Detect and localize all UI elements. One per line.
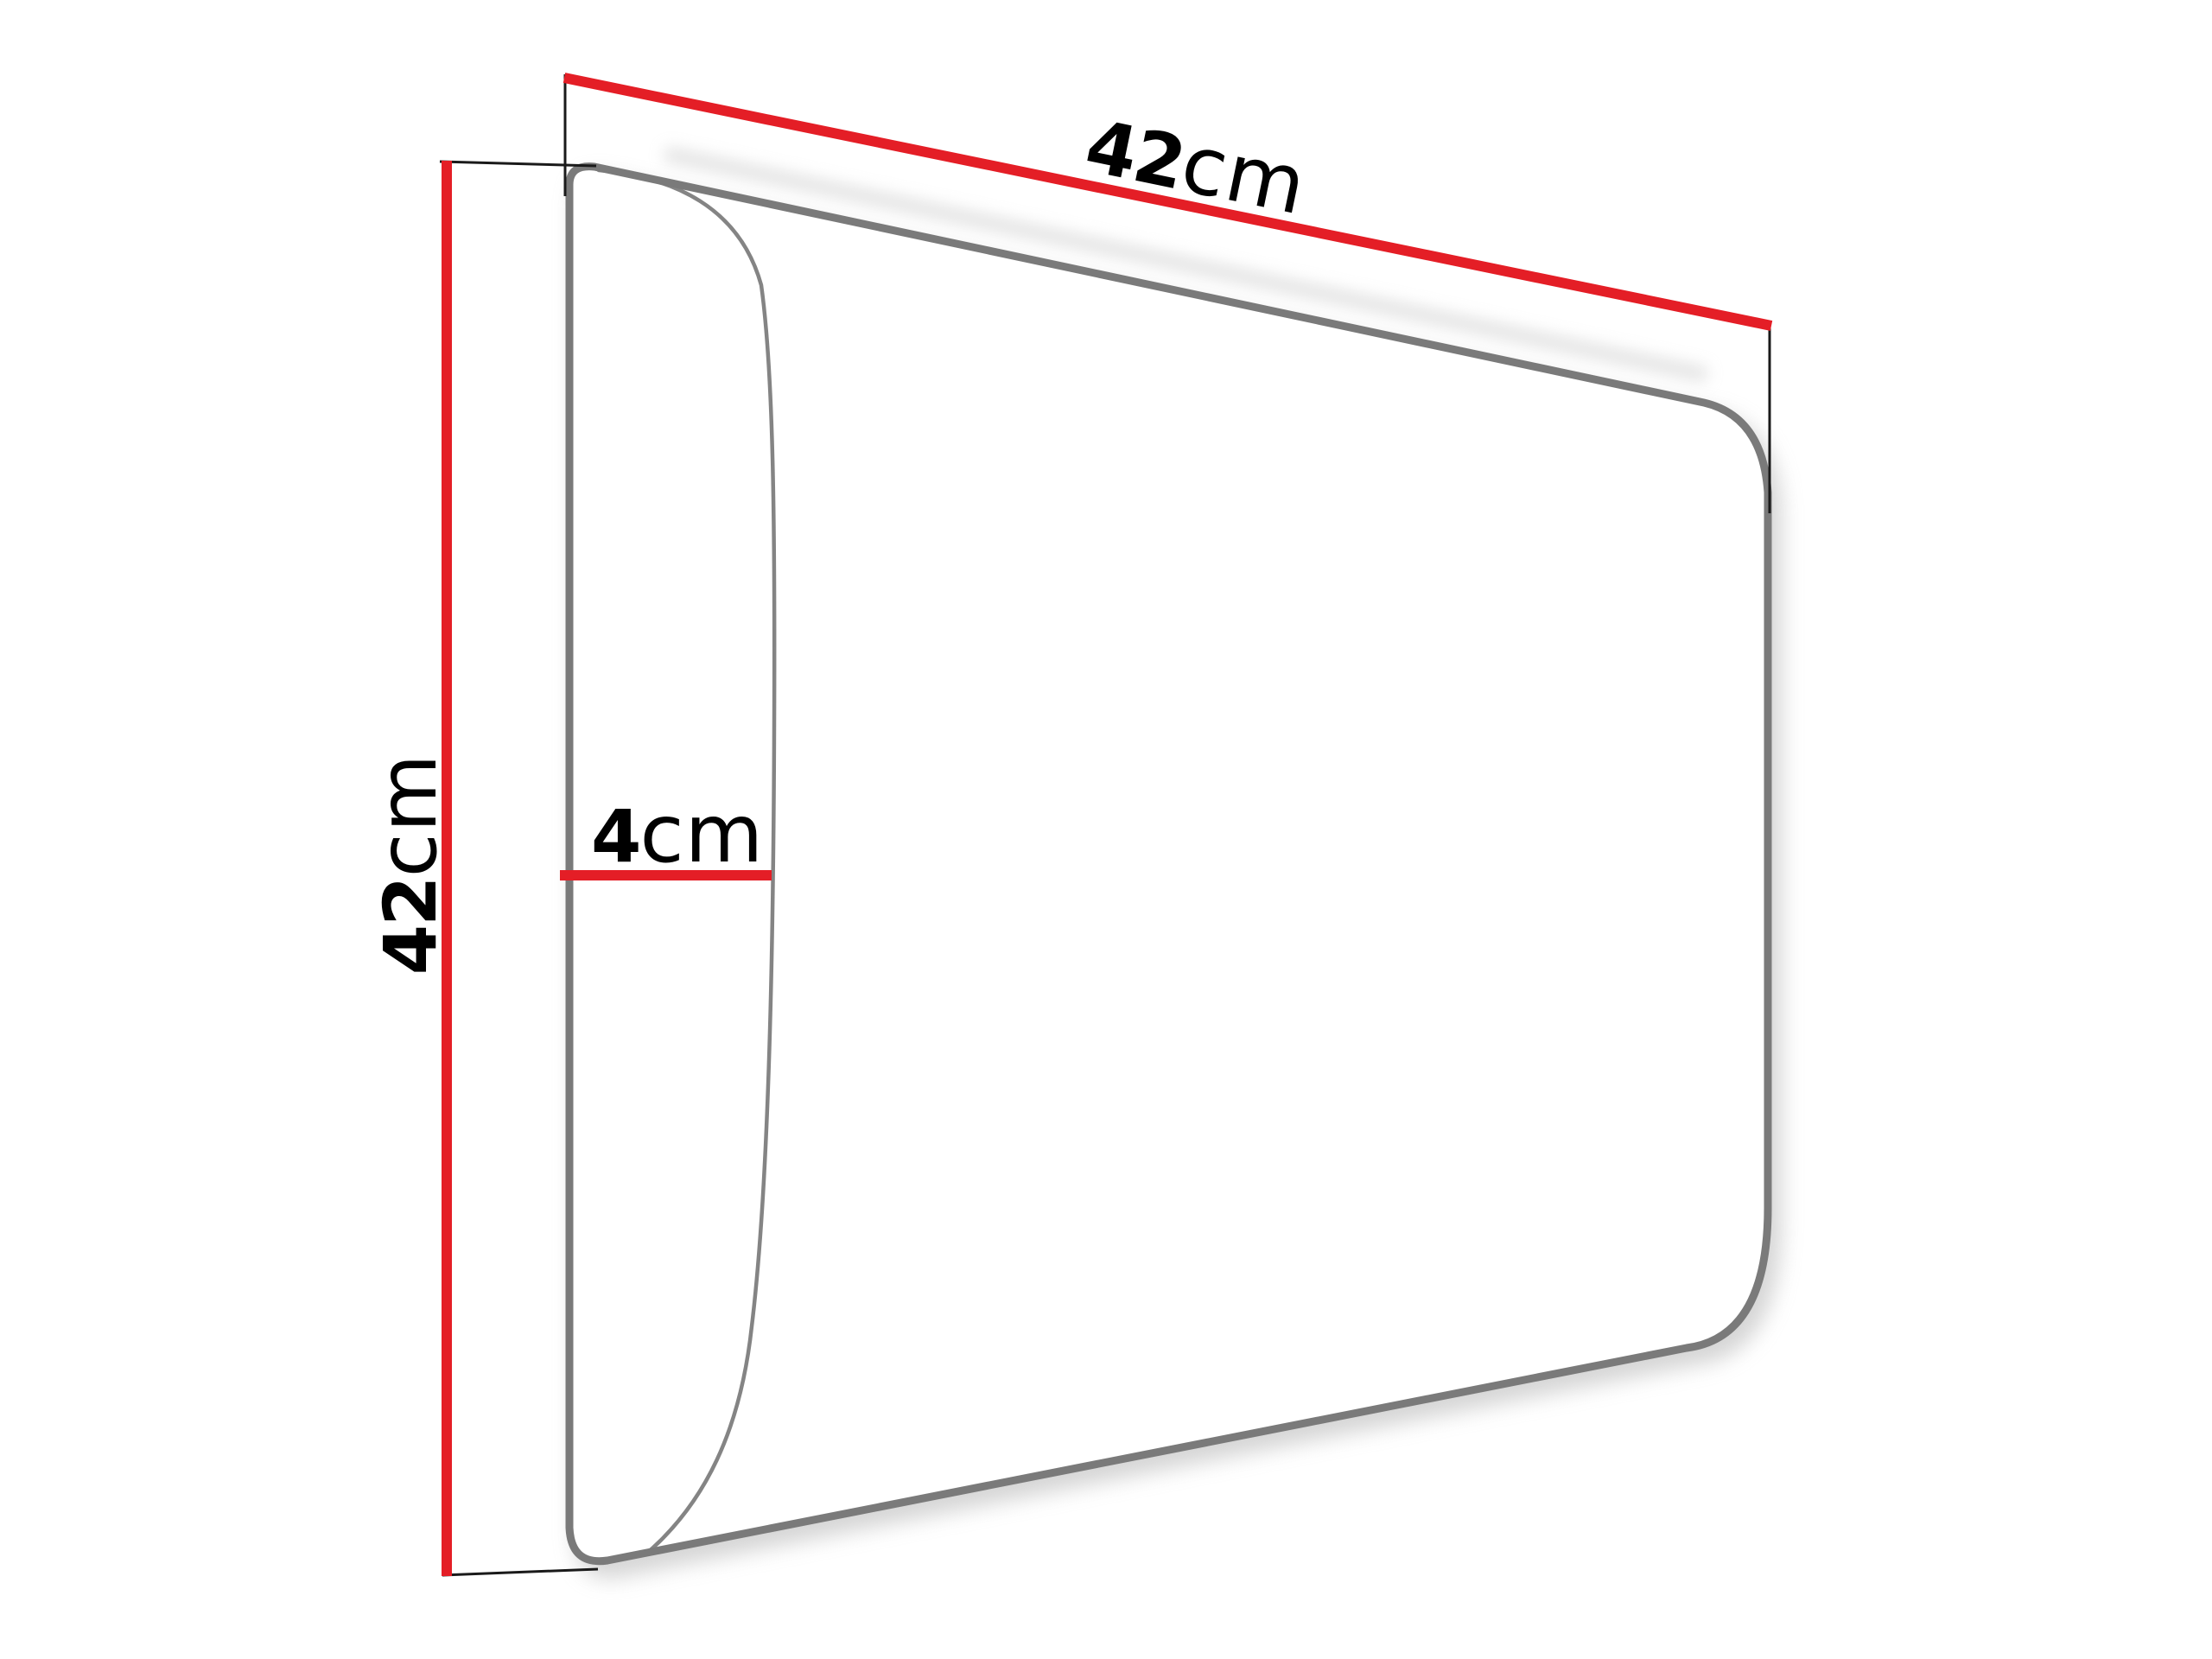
wall-panel-dimension-diagram: 42cm 42cm 4cm	[0, 0, 2212, 1659]
depth-dimension-label: 4cm	[591, 787, 764, 880]
height-dimension-label: 42cm	[361, 753, 454, 976]
diagram-canvas: 42cm 42cm 4cm	[0, 0, 2212, 1659]
height-unit: cm	[361, 753, 454, 878]
depth-unit: cm	[639, 787, 764, 880]
height-value: 42	[368, 877, 453, 975]
depth-value: 4	[591, 794, 639, 879]
width-unit: cm	[1173, 117, 1314, 233]
extension-line-bottom-left	[442, 1569, 598, 1575]
extension-line-top-corner-horizontal	[440, 162, 596, 166]
